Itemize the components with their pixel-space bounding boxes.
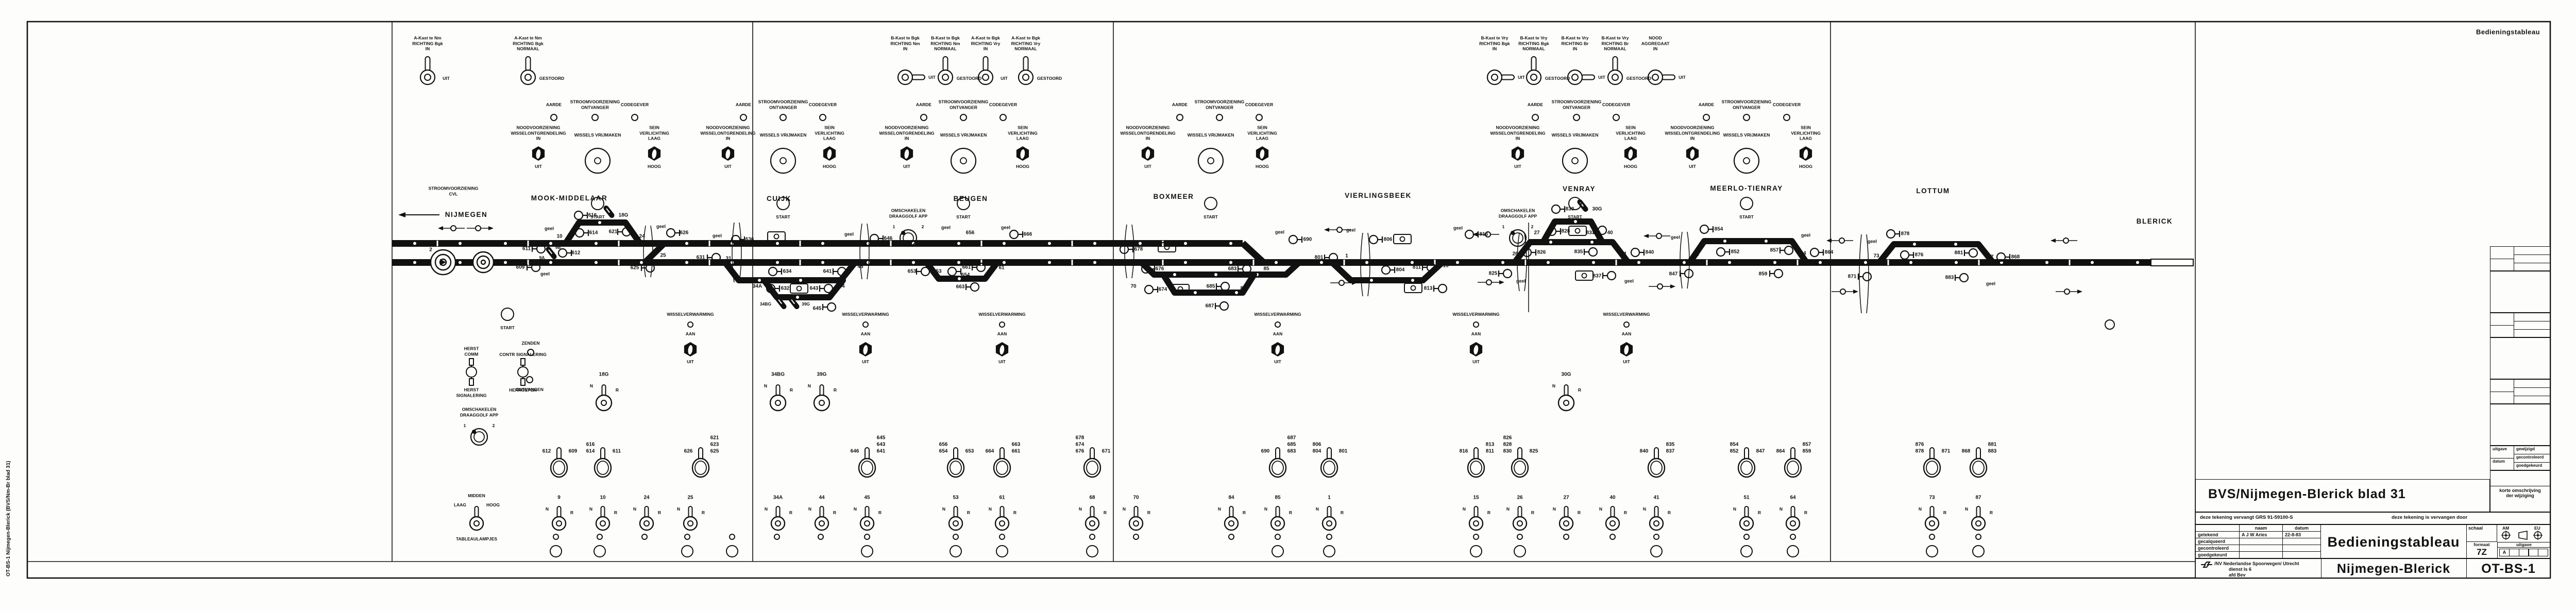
key-switch-icon[interactable] [426, 57, 430, 71]
detector-box-icon [1582, 274, 1587, 278]
sein-label: SEIN VERLICHTING LAAG [1616, 125, 1646, 141]
lamp-icon [551, 114, 557, 121]
track-joint-dot [1549, 241, 1552, 244]
signal-number: 881 [1955, 250, 1963, 256]
group-number: 612 [543, 449, 551, 454]
n-label: N [677, 506, 680, 512]
pos-2-label: 2 [922, 224, 924, 230]
rotary-switch-icon[interactable] [901, 231, 905, 235]
rotary-switch-icon[interactable] [1513, 233, 1523, 243]
push-button[interactable] [1205, 197, 1217, 210]
track-joint-tick [1072, 260, 1073, 265]
track-joint-dot [1214, 273, 1217, 276]
key-switch-icon[interactable] [1019, 70, 1033, 84]
pos-2-label: 2 [1531, 224, 1534, 230]
key-switch-icon[interactable] [1501, 75, 1514, 80]
detector-box-icon [768, 232, 785, 241]
key-switch-icon[interactable] [1581, 75, 1595, 80]
key-switch-icon[interactable] [1225, 517, 1238, 530]
rotary-switch-icon[interactable] [474, 432, 484, 442]
lamp-icon [1000, 114, 1006, 121]
signal-key-icon[interactable] [1576, 198, 1589, 213]
key-switch-icon[interactable] [1230, 506, 1233, 518]
signal-icon [1552, 205, 1560, 213]
group-number: 645 [877, 435, 886, 441]
key-switch-icon[interactable] [420, 70, 435, 84]
track-joint-tick [618, 260, 620, 265]
switch-key-number: 10 [600, 495, 605, 501]
boundary-bracket [1859, 234, 1861, 313]
release-button[interactable] [1198, 148, 1223, 173]
r-label: R [614, 510, 617, 516]
signal-number: 621 [609, 229, 618, 235]
lamp-icon [820, 114, 826, 121]
zenden-label: ZENDEN [522, 341, 540, 346]
key-switch-icon[interactable] [770, 395, 786, 411]
signal-icon [574, 211, 583, 219]
key-switch-icon[interactable] [820, 506, 824, 518]
signal-number: 654 [961, 273, 970, 278]
aan-label: AAN [1273, 331, 1282, 337]
detector-box-icon [1404, 283, 1422, 293]
key-switch-icon[interactable] [645, 506, 649, 518]
key-switch-icon[interactable] [1606, 517, 1619, 530]
direction-arrow-icon [2050, 239, 2056, 243]
lamp-icon [597, 534, 602, 539]
switch-key-number: 51 [1743, 495, 1749, 501]
omschakelen-label: OMSCHAKELEN DRAAGGOLF APP [1499, 208, 1537, 219]
key-switch-icon[interactable] [1532, 57, 1536, 71]
release-button[interactable] [1208, 158, 1214, 164]
track-joint-dot [413, 261, 416, 264]
key-switch-icon[interactable] [1469, 517, 1483, 530]
push-button[interactable] [861, 546, 873, 557]
start-label: START [1568, 214, 1582, 220]
r-label: R [1531, 510, 1534, 516]
direction-lamp-icon [2064, 289, 2070, 294]
group-number: 653 [965, 449, 974, 454]
signal-icon [1700, 225, 1708, 233]
track-joint-dot [957, 242, 960, 245]
geel-label: geel [1801, 233, 1810, 239]
push-button[interactable] [501, 308, 514, 320]
boundary-bracket [739, 223, 741, 282]
track-diagram [0, 0, 2576, 611]
key-switch-label: B-Kast te Bgk RICHTING Nm NORMAAL [930, 35, 960, 52]
wisselverwarming-label: WISSELVERWARMING [1603, 312, 1650, 317]
lamp-icon [1624, 322, 1629, 327]
r-label: R [833, 510, 836, 516]
key-switch-icon[interactable] [1518, 506, 1522, 518]
detector-box-icon [790, 284, 808, 293]
track-joint-tick [1888, 260, 1889, 265]
r-label: R [1668, 510, 1671, 516]
key-switch-icon[interactable] [557, 506, 561, 518]
key-switch-icon[interactable] [1560, 517, 1573, 530]
omschakelen-label: OMSCHAKELEN DRAAGGOLF APP [460, 407, 498, 418]
start-label: START [956, 214, 971, 220]
sein-label: SEIN VERLICHTING LAAG [1791, 125, 1821, 141]
signal-number: 828 [1562, 229, 1570, 234]
switch-key-number: 68 [1089, 495, 1095, 501]
lamp-label: CODEGEVER [1773, 102, 1801, 108]
group-number: 835 [1666, 442, 1675, 448]
uit-label: UIT [862, 359, 869, 365]
key-switch-icon[interactable] [1925, 517, 1939, 530]
release-button[interactable] [1572, 158, 1578, 164]
n-label: N [764, 383, 767, 389]
n-label: N [1965, 506, 1968, 512]
key-switch-icon[interactable] [860, 517, 874, 530]
push-button[interactable] [1651, 546, 1662, 557]
push-button[interactable] [950, 546, 961, 557]
key-switch-icon[interactable] [1487, 70, 1502, 84]
key-switch-icon[interactable] [771, 517, 785, 530]
key-switch-icon[interactable] [552, 517, 566, 530]
key-switch-icon[interactable] [1271, 517, 1284, 530]
group-number: 671 [1102, 449, 1111, 454]
track-joint-dot [1235, 291, 1238, 294]
group-number: 626 [684, 449, 693, 454]
key-switch-icon[interactable] [1024, 57, 1028, 71]
key-switch-icon[interactable] [1565, 385, 1568, 396]
key-switch-icon[interactable] [984, 57, 988, 71]
signal-number: 825 [1489, 271, 1498, 277]
geel-label: geel [545, 226, 554, 232]
track-joint-dot [595, 242, 598, 245]
key-switch-icon[interactable] [596, 517, 609, 530]
signal-number: 34BG [760, 301, 771, 307]
signal-number: 40 [1607, 230, 1613, 236]
signal-icon [1810, 248, 1819, 257]
track-joint-dot [1229, 261, 1232, 264]
r-label: R [1990, 510, 1993, 516]
track-joint-dot [1003, 261, 1006, 264]
key-switch-icon[interactable] [1134, 506, 1138, 518]
push-button[interactable] [1973, 546, 1984, 557]
direction-arrow-icon [1853, 290, 1858, 294]
push-button[interactable] [1787, 546, 1799, 557]
lever-switch-icon[interactable] [521, 359, 525, 365]
release-button[interactable] [585, 148, 610, 173]
track-joint-dot [459, 242, 462, 245]
key-switch-icon[interactable] [1930, 506, 1934, 518]
track-joint-tick [890, 241, 892, 246]
lamp-icon [1613, 114, 1619, 121]
switch-key-number: 1 [1328, 495, 1331, 501]
track-joint-dot [2045, 261, 2048, 264]
station-name: BEUGEN [954, 195, 988, 202]
push-button[interactable] [1514, 546, 1526, 557]
key-switch-icon[interactable] [1608, 70, 1622, 84]
key-switch-icon[interactable] [1662, 75, 1675, 80]
key-switch-label: B-Kast te Vry RICHTING Br NORMAAL [1602, 35, 1629, 52]
signal-number: 61 [998, 265, 1004, 271]
signal-number: 626 [680, 230, 689, 236]
push-button[interactable] [550, 546, 562, 557]
key-switch-icon[interactable] [1091, 506, 1094, 518]
revision-grid: uitgave datum gewijzigd gecontroleerd go… [2490, 446, 2550, 470]
lamp-label: STROOMVOORZIENING ONTVANGER [1195, 99, 1245, 110]
direction-lamp-icon [1840, 289, 1845, 294]
key-switch-icon[interactable] [943, 57, 948, 71]
push-button[interactable] [996, 546, 1008, 557]
key-switch-icon[interactable] [1323, 517, 1336, 530]
signal-icon [575, 229, 584, 237]
key-switch-icon[interactable] [1086, 517, 1099, 530]
company-afd: afd Bev [2229, 572, 2246, 578]
key-switch-icon[interactable] [776, 385, 780, 396]
track-joint-dot [2136, 261, 2139, 264]
n-label: N [1316, 506, 1319, 512]
key-side-label: GESTOORD [1545, 76, 1570, 81]
pos-2-label: 2 [493, 423, 495, 429]
signal-icon [1631, 248, 1639, 257]
station-name: VIERLINGSBEEK [1345, 192, 1412, 199]
group-number: 857 [1803, 442, 1811, 448]
hoog-label: HOOG [1799, 164, 1812, 169]
key-switch-icon[interactable] [1786, 517, 1800, 530]
key-switch-icon[interactable] [1565, 506, 1568, 518]
key-switch-icon[interactable] [954, 506, 958, 518]
key-switch-icon[interactable] [814, 395, 829, 411]
key-switch-icon[interactable] [475, 506, 479, 518]
push-button[interactable] [594, 546, 605, 557]
key-switch-icon[interactable] [866, 506, 869, 518]
signal-number: 847 [1669, 271, 1678, 277]
track-joint-tick [1706, 260, 1708, 265]
ns-logo-icon [2200, 561, 2213, 568]
push-button[interactable] [726, 546, 738, 557]
key-switch-label: B-Kast te Bgk RICHTING Nm IN [890, 35, 920, 52]
lamp-label: CODEGEVER [1245, 102, 1273, 108]
track-joint-dot [1048, 261, 1051, 264]
company-cell: /NV Nederlandse Spoorwegen/ Utrecht dien… [2196, 559, 2321, 579]
lamp-icon [1090, 534, 1095, 539]
key-switch-icon[interactable] [602, 385, 606, 396]
track-joint-dot [1773, 261, 1776, 264]
key-switch-icon[interactable] [1527, 70, 1541, 84]
key-switch-icon[interactable] [1655, 506, 1658, 518]
direction-lamp-icon [451, 226, 456, 231]
tb-naam-hdr: naam [2240, 525, 2283, 532]
rotary-switch-icon[interactable] [472, 430, 476, 434]
key-switch-icon[interactable] [601, 506, 605, 518]
key-switch-icon[interactable] [1791, 506, 1795, 518]
key-switch-icon[interactable] [815, 517, 828, 530]
group-number: 881 [1988, 442, 1997, 448]
track-joint-dot [504, 261, 507, 264]
key-switch-icon[interactable] [898, 70, 912, 84]
push-button[interactable] [1926, 546, 1938, 557]
track-joint-dot [1093, 261, 1096, 264]
company-name: /NV Nederlandse Spoorwegen/ Utrecht [2214, 561, 2299, 566]
bvs-title: BVS/Nijmegen-Blerick blad 31 [2196, 480, 2489, 502]
signal-number: 634 [783, 269, 792, 275]
rotary-switch-icon[interactable] [1511, 231, 1515, 235]
push-button[interactable] [682, 546, 693, 557]
push-button[interactable] [1272, 546, 1283, 557]
lever-switch-icon[interactable] [469, 379, 473, 385]
push-button[interactable] [1087, 546, 1098, 557]
key-switch-icon[interactable] [1129, 517, 1143, 530]
tb-row-naam [2240, 545, 2283, 552]
n-label: N [589, 506, 592, 512]
release-button[interactable] [1563, 148, 1587, 173]
track-joint-dot [1048, 242, 1051, 245]
herst-signalering-label: HERST SIGNALERING [456, 387, 486, 398]
key-switch-icon[interactable] [938, 70, 953, 84]
key-switch-icon[interactable] [1328, 506, 1331, 518]
tb-row-label: getekend [2196, 532, 2240, 538]
release-button[interactable] [780, 158, 786, 164]
lamp-icon [999, 322, 1005, 327]
group-number: 687 [1287, 435, 1296, 441]
lever-switch-icon[interactable] [518, 367, 528, 377]
key-switch-icon[interactable] [470, 517, 483, 530]
uit-label: UIT [998, 359, 1006, 365]
tb-row-naam [2240, 552, 2283, 559]
key-switch-icon[interactable] [640, 517, 653, 530]
lever-switch-icon[interactable] [466, 367, 477, 377]
signal-icon [1863, 273, 1871, 281]
release-button[interactable] [595, 158, 601, 164]
track-joint-tick [528, 241, 529, 246]
group-number: 854 [1730, 442, 1739, 448]
key-switch-icon[interactable] [1513, 517, 1527, 530]
start-label: START [1739, 214, 1754, 220]
key-switch-icon[interactable] [526, 57, 531, 71]
geel-label: geel [540, 271, 550, 277]
sheet-number: OT-BS-1 [2481, 562, 2536, 576]
signal-number: 854 [1715, 227, 1723, 232]
release-button[interactable] [960, 158, 967, 164]
key-switch-icon[interactable] [596, 395, 612, 411]
signal-icon [1145, 285, 1153, 294]
n-label: N [546, 506, 549, 512]
track-joint-tick [981, 260, 982, 265]
key-switch-icon[interactable] [689, 506, 692, 518]
wissels-label: WISSELS VRIJMAKEN [1552, 132, 1599, 138]
track-joint-tick [800, 260, 801, 265]
key-switch-icon[interactable] [820, 385, 824, 396]
lamp-icon [1610, 534, 1615, 539]
direction-arrow-icon [1826, 239, 1832, 243]
track-joint-dot [685, 261, 688, 264]
switch-key-number: 64 [1790, 495, 1795, 501]
signal-number: 70 [1130, 284, 1136, 290]
signal-number: 685 [1207, 284, 1215, 290]
key-switch-icon[interactable] [911, 75, 925, 80]
track-joint-tick [981, 241, 982, 246]
lamp-icon [642, 534, 647, 539]
group-number: 864 [1776, 449, 1785, 454]
hoog-label: HOOG [1624, 164, 1637, 169]
signal-number: 609 [516, 265, 525, 270]
revision-note-box [2490, 404, 2550, 446]
tableaulampjes-label: TABLEAULAMPJES [456, 536, 497, 542]
signal-number: 611 [522, 246, 531, 252]
track-continuation-outline [2151, 259, 2193, 266]
key-switch-icon[interactable] [1745, 506, 1749, 518]
signal-icon [1010, 230, 1018, 239]
track-joint-dot [1411, 279, 1414, 282]
track-joint-dot [459, 261, 462, 264]
detector-box-icon [774, 234, 779, 239]
push-button[interactable] [1740, 197, 1753, 210]
key-switch-icon[interactable] [521, 70, 535, 84]
title-block-mid: naam datum getekend A J W Aries 22-8-83 … [2195, 524, 2550, 558]
key-switch-icon[interactable] [1276, 506, 1280, 518]
release-button[interactable] [1743, 158, 1750, 164]
geel-label: geel [941, 225, 951, 231]
n-label: N [1599, 506, 1602, 512]
lamp-label: AARDE [1699, 102, 1714, 108]
track-joint-dot [1637, 261, 1640, 264]
key-switch-icon[interactable] [1972, 517, 1985, 530]
track-main-upper [392, 240, 1243, 247]
key-switch-icon[interactable] [1001, 506, 1004, 518]
push-button[interactable] [1741, 546, 1752, 557]
signal-icon [827, 303, 836, 311]
revision-grid [2490, 313, 2550, 337]
group-number: 868 [1962, 449, 1971, 454]
switch-key-number: 25 [687, 495, 693, 501]
key-switch-icon[interactable] [1613, 57, 1618, 71]
lever-switch-icon[interactable] [469, 359, 473, 365]
key-switch-icon[interactable] [1475, 506, 1478, 518]
track-joint-dot [1547, 261, 1550, 264]
lever-switch-icon[interactable] [521, 379, 525, 385]
track-joint-dot [549, 242, 552, 245]
signal-number: 24 [639, 234, 645, 240]
key-switch-icon[interactable] [684, 517, 697, 530]
release-button[interactable] [771, 148, 795, 173]
key-switch-icon[interactable] [1558, 395, 1574, 411]
key-switch-icon[interactable] [949, 517, 962, 530]
group-number: 654 [939, 449, 948, 454]
key-switch-icon[interactable] [1611, 506, 1615, 518]
tb-row-label: goedgekeurd [2196, 552, 2240, 559]
switch-key-number: 15 [1473, 495, 1479, 501]
wissels-label: WISSELS VRIJMAKEN [574, 132, 621, 138]
key-switch-label: A-Kast te Nm RICHTING Bgk IN [412, 35, 443, 52]
midden-label: MIDDEN [468, 493, 485, 499]
wisselverwarming-label: WISSELVERWARMING [842, 312, 889, 317]
track-joint-dot [640, 261, 643, 264]
key-switch-icon[interactable] [995, 517, 1009, 530]
n-label: N [633, 506, 636, 512]
release-button[interactable] [951, 148, 976, 173]
boundary-bracket [860, 224, 862, 279]
track-joint-dot [685, 242, 688, 245]
lamp-icon [1473, 322, 1479, 327]
signal-number: 826 [1537, 250, 1546, 256]
key-switch-icon[interactable] [776, 506, 780, 518]
release-button[interactable] [1734, 148, 1759, 173]
key-switch-icon[interactable] [1740, 517, 1753, 530]
push-button[interactable] [1470, 546, 1482, 557]
push-button[interactable] [1324, 546, 1335, 557]
key-switch-icon[interactable] [1977, 506, 1980, 518]
switch-key-number: 70 [1133, 495, 1139, 501]
key-switch-icon[interactable] [1650, 517, 1663, 530]
signal-number: 864 [1825, 250, 1834, 256]
direction-lamp-icon [1339, 280, 1344, 285]
r-label: R [658, 510, 661, 516]
geel-label: geel [1624, 279, 1634, 284]
geel-label: geel [713, 233, 722, 239]
